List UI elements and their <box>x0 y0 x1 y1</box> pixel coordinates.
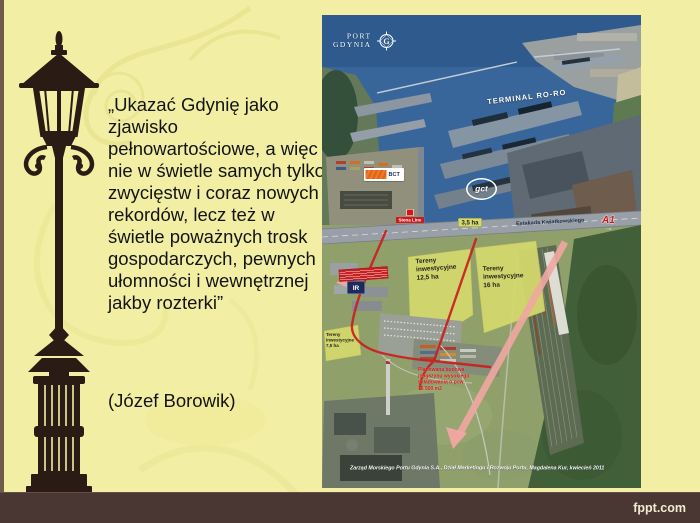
presentation-slide: „Ukazać Gdynię jako zjawisko pełnowartoś… <box>0 0 700 523</box>
port-gdynia-map: Port Gdynia G TERMINAL RO-RO BCT <box>322 15 641 488</box>
map-aerial-graphic <box>322 15 641 488</box>
a1-motorway-badge: A1 → <box>602 215 615 232</box>
stena-line-logo: Stena Line <box>396 209 424 223</box>
port-gdynia-logo: Port Gdynia G <box>333 30 398 52</box>
logo-line2: Gdynia <box>333 41 372 50</box>
footer-bar: fppt.com <box>0 492 700 523</box>
stena-line-label: Stena Line <box>396 217 424 223</box>
ir-logo-badge: IR <box>347 281 365 294</box>
lamp-post-icon <box>2 30 112 502</box>
quote-attribution: (Józef Borowik) <box>108 390 235 412</box>
map-source-caption: Zarząd Morskiego Portu Gdynia S.A., Dzia… <box>350 465 633 471</box>
plot-3-5ha-badge: 3,5 ha <box>458 218 482 227</box>
arrow-right-icon: → <box>604 223 613 232</box>
svg-text:G: G <box>383 37 389 46</box>
bct-label: BCT <box>389 172 400 178</box>
fppt-watermark: fppt.com <box>633 493 686 523</box>
quote-text: „Ukazać Gdynię jako zjawisko pełnowartoś… <box>108 94 325 314</box>
planned-warehouse-note: Planowana budowa magazynu wysokiego skła… <box>418 367 483 392</box>
gct-terminal-badge: gct <box>466 178 497 200</box>
bct-terminal-logo: BCT <box>364 168 404 181</box>
investment-zone-12-5ha-label: Tereny inwestycyjne 12,5 ha <box>415 255 457 282</box>
bct-logo-mark <box>366 170 387 179</box>
investment-zone-16ha-label: Tereny inwestycyjne 16 ha <box>483 263 524 289</box>
stena-line-icon <box>406 209 413 216</box>
investment-zone-7-5ha-label: Tereny inwestycyjne 7,5 ha <box>326 332 354 348</box>
compass-g-emblem-icon: G <box>376 30 398 52</box>
logo-line1: Port <box>333 32 372 41</box>
